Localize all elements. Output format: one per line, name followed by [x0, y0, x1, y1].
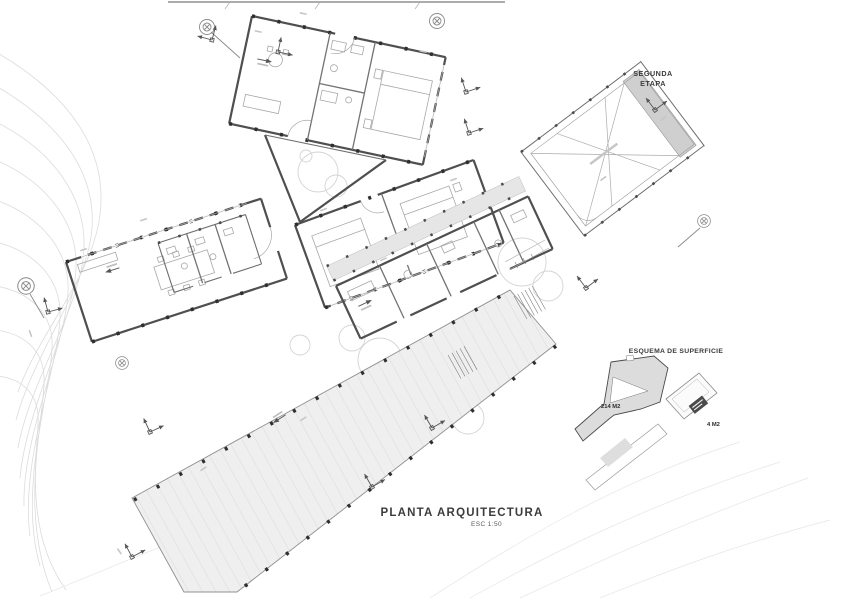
secondary-area-label: 4 M2	[707, 422, 720, 428]
axis-marker-icon	[123, 537, 146, 560]
site-boundary-line	[168, 2, 505, 9]
second-stage-label-line2: ETAPA	[640, 79, 666, 88]
axis-marker-icon	[575, 267, 599, 291]
second-stage-label-line1: SEGUNDA	[633, 69, 672, 78]
deck-terrace	[132, 286, 556, 592]
living-furniture	[243, 44, 292, 114]
access-arrow-icon	[256, 57, 272, 68]
tree-icon	[698, 215, 711, 228]
access-arrow-icon	[103, 263, 120, 275]
bed	[363, 69, 432, 140]
surface-scheme: ESQUEMA DE SUPERFICIE 214 M2 4 M2	[575, 348, 723, 490]
axis-marker-icon	[459, 73, 481, 95]
second-stage-footprint-shape	[666, 373, 717, 419]
site-plan-drawing: SEGUNDA ETAPA	[0, 0, 857, 600]
title-block: PLANTA ARQUITECTURA ESC 1:50	[381, 507, 544, 528]
second-stage-building	[521, 62, 704, 236]
axis-marker-icon	[276, 37, 296, 57]
second-stage-label: SEGUNDA ETAPA	[633, 69, 672, 88]
covered-walkway	[327, 176, 526, 280]
plan-scale: ESC 1:50	[471, 521, 502, 528]
access-arrows	[256, 57, 374, 425]
access-arrow-icon	[357, 298, 374, 311]
axis-marker-icon	[142, 412, 165, 435]
connection-path	[505, 240, 549, 270]
tree-icon	[430, 14, 445, 29]
wing-top-bedrooms	[229, 16, 446, 165]
tree-icon	[116, 357, 129, 370]
axis-marker-icon	[462, 114, 484, 136]
main-area-label: 214 M2	[601, 404, 620, 410]
architectural-plan-sheet: SEGUNDA ETAPA	[0, 0, 857, 600]
deck-footprint-shape	[586, 424, 667, 490]
tree-icon	[200, 20, 215, 35]
plan-title: PLANTA ARQUITECTURA	[381, 507, 544, 519]
surface-scheme-title: ESQUEMA DE SUPERFICIE	[629, 348, 724, 355]
tree-icon	[18, 278, 35, 295]
